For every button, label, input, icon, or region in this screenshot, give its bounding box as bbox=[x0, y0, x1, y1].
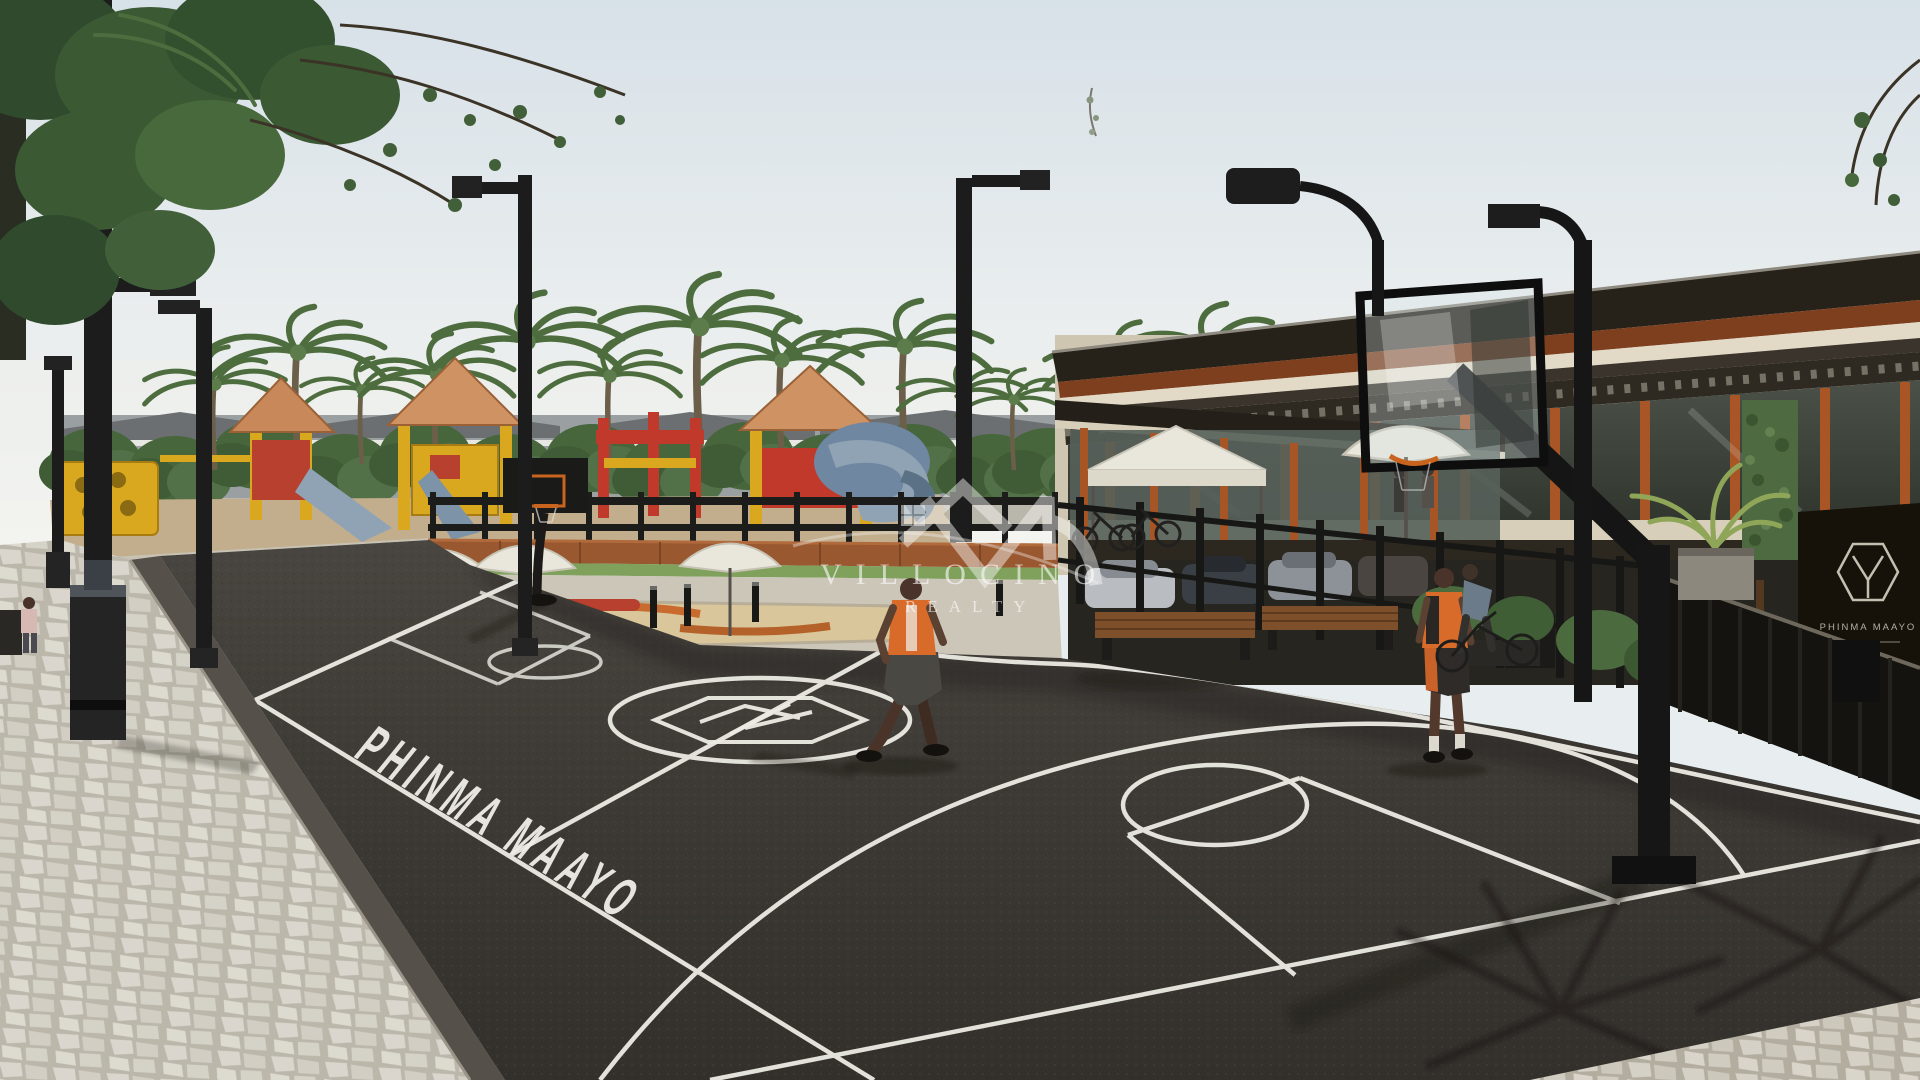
building-sign-text: PHINMA MAAYO bbox=[1820, 622, 1917, 633]
planter-box-left bbox=[0, 610, 22, 655]
architectural-render-scene: PHINMA MAAYO bbox=[0, 0, 1920, 1080]
black-box bbox=[1832, 640, 1880, 702]
watermark-brand: VILLOCINO bbox=[820, 558, 1109, 591]
watermark-tagline: REALTY bbox=[905, 597, 1037, 616]
watermark-logo-window bbox=[901, 505, 925, 526]
